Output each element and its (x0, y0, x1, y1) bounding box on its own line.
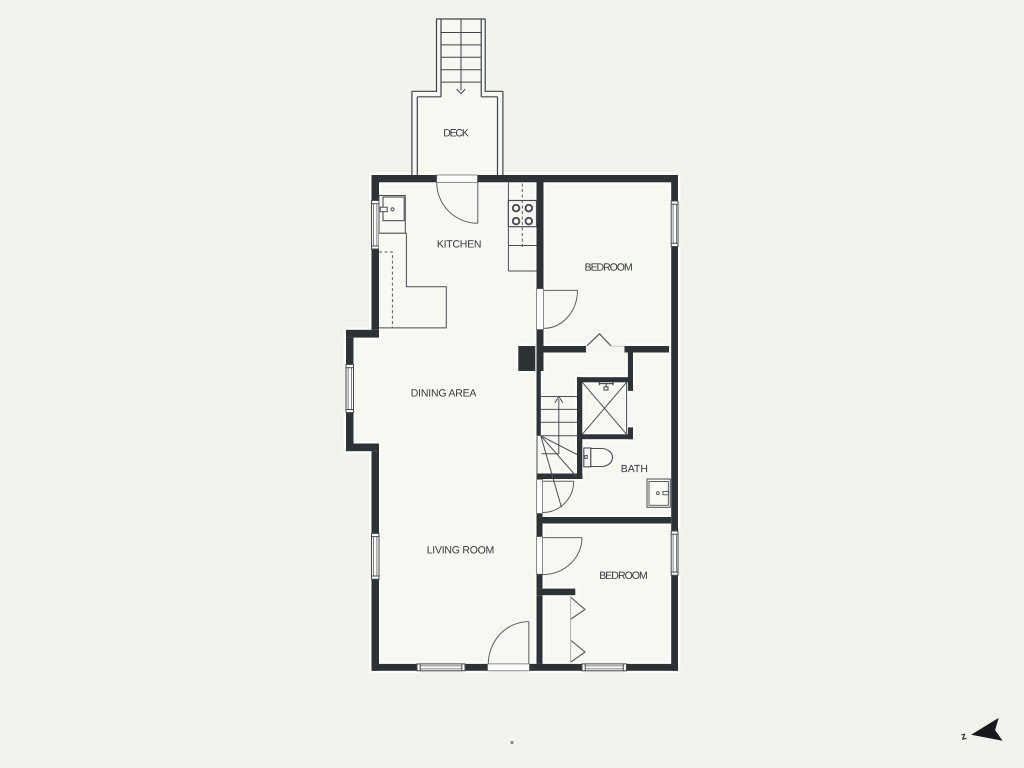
svg-text:DINING AREA: DINING AREA (411, 388, 477, 400)
svg-text:LIVING ROOM: LIVING ROOM (427, 544, 495, 556)
svg-text:BATH: BATH (621, 463, 649, 475)
svg-text:BEDROOM: BEDROOM (585, 262, 634, 274)
svg-text:BEDROOM: BEDROOM (599, 570, 648, 582)
svg-text:DECK: DECK (443, 127, 469, 139)
svg-text:KITCHEN: KITCHEN (437, 239, 482, 251)
